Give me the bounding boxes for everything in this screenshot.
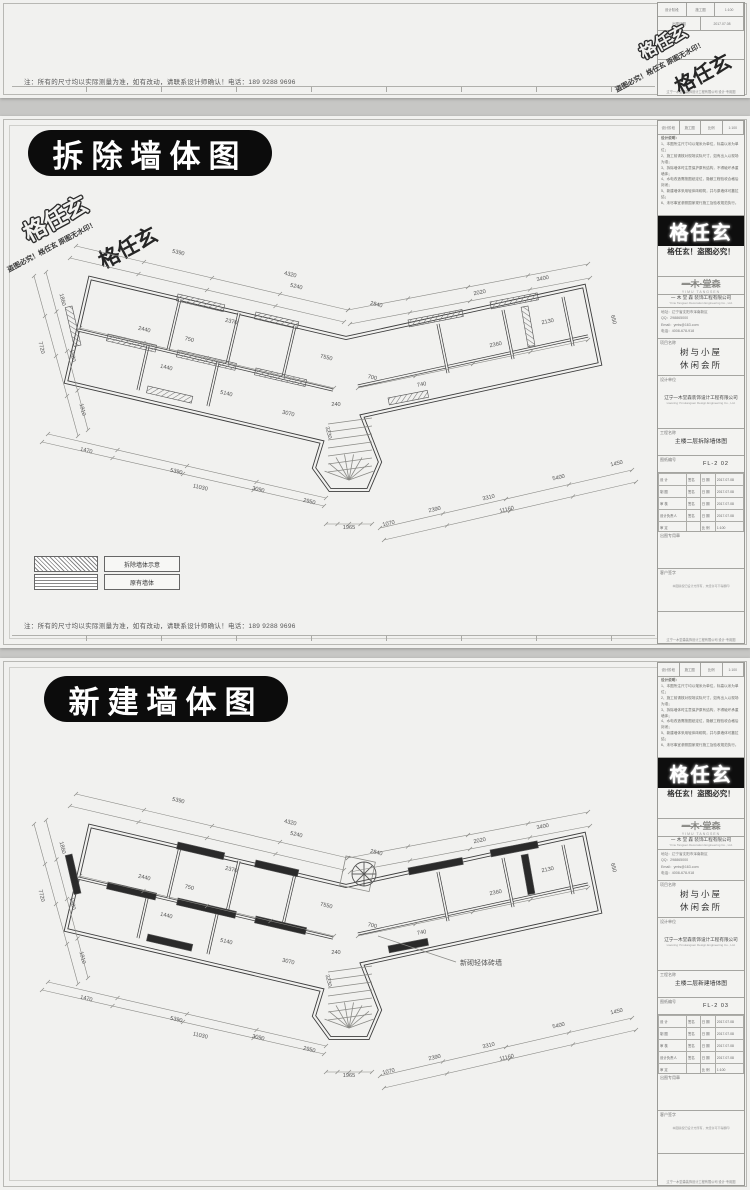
signature-cell: 制 图	[659, 1028, 687, 1040]
dimension-label: 4320	[283, 819, 296, 828]
dimension-label: 2840	[369, 849, 382, 858]
drawing-number-block: 图纸编号FL-2 03	[658, 998, 744, 1015]
dimension-label: 11160	[499, 505, 515, 514]
dimension-label: 1470	[79, 995, 92, 1004]
company-block: 一 木 堂 森 装饰工程有限公司Yimu Tangsen Decoration …	[658, 837, 744, 850]
head-cell: 比例	[701, 663, 723, 676]
sheet-title-text: 新建墙体图	[69, 677, 264, 722]
dimension-label: 2950	[302, 498, 315, 507]
dimension-label: 1450	[610, 460, 623, 469]
dimension-label: 2130	[541, 318, 554, 326]
dimension-label: 3310	[482, 494, 495, 503]
contact-block: 地址：辽宁省沈阳市浑南新区QQ：298865000Email：ymts@163.…	[658, 850, 744, 881]
head-cell: 2017.07.08	[701, 17, 744, 30]
dimension-label: 750	[184, 884, 194, 892]
design-unit-label: 设计单位	[658, 918, 744, 925]
head-cell: 设计阶段	[658, 3, 687, 16]
signature-table: 设 计签名日 期2017.07.08制 图签名日 期2017.07.08审 核签…	[658, 473, 744, 532]
dimension-label: 2390	[428, 506, 441, 515]
plan-legend: 拆除墙体示意 原有墙体	[34, 556, 180, 592]
anti-piracy-text: 格任玄！盗图必究！	[658, 246, 744, 257]
dimension-label: 7720	[37, 889, 46, 903]
legend-label: 原有墙体	[104, 574, 180, 590]
dimension-label: 7550	[319, 902, 332, 911]
dimension-label: 1070	[382, 1068, 395, 1077]
signature-cell: 2017.07.08	[715, 1040, 743, 1052]
dimension-label: 2440	[137, 874, 150, 883]
design-unit-block: 设计单位辽宁一木堂森装饰设计工程有限公司Liaoning Yimutangsen…	[658, 376, 744, 429]
dimension-label: 5400	[552, 1022, 565, 1031]
signature-cell: 2017.07.08	[715, 498, 743, 510]
signature-cell: 设计负责人	[659, 1052, 687, 1064]
sheet-top-partial: 注：所有的尺寸均以实际测量为准，如有改动，请联系设计师确认！电话：189 928…	[0, 0, 750, 98]
project-name: 树与小屋休闲会所	[658, 888, 744, 914]
signature-cell: 日 期	[700, 1016, 715, 1028]
title-block-head-row: 设计阶段施工图比例1:100	[658, 121, 744, 135]
brand-block: 格任玄格任玄！盗图必究！	[658, 758, 744, 819]
drawing-number-label: 图纸编号	[658, 998, 688, 1014]
dimension-label: 3090	[251, 1034, 264, 1043]
project-block: 项目名称树与小屋休闲会所	[658, 339, 744, 376]
signature-cell: 日 期	[700, 1052, 715, 1064]
dimension-label: 650	[609, 314, 617, 325]
signature-cell: 2017.07.08	[715, 1028, 743, 1040]
dimension-label: 3090	[251, 486, 264, 495]
dimension-label: 1470	[79, 447, 92, 456]
dimension-label: 11030	[192, 1031, 208, 1040]
signature-cell: 比 例	[700, 522, 715, 533]
copyright-text: 本图版权归设计方所有，未经许可不得翻印	[658, 1126, 744, 1130]
signature-cell: 日 期	[700, 1028, 715, 1040]
brand-watermark: 格任玄	[658, 758, 744, 788]
dimension-label: 1070	[382, 520, 395, 529]
dimension-label: 5240	[289, 283, 302, 292]
sheet-new-wall-plan: 新建墙体图 新砌轻体砖墙5390432052402840202034006507…	[0, 658, 750, 1190]
dimension-label: 740	[417, 929, 427, 937]
dimension-label: 2360	[489, 889, 502, 897]
anti-piracy-text: 格任玄！盗图必究！	[658, 788, 744, 799]
signature-table: 设 计签名日 期2017.07.08制 图签名日 期2017.07.08审 核签…	[658, 1015, 744, 1074]
signature-cell: 2017.07.08	[715, 1016, 743, 1028]
logo-text: 一木·堂森	[658, 277, 744, 290]
floor-plan-new-wall: 新砌轻体砖墙5390432052402840202034006507720186…	[28, 776, 644, 1106]
drawing-name-label: 工程名称	[658, 971, 744, 978]
legend-row: 拆除墙体示意	[34, 556, 180, 572]
signature-cell: 审 定	[659, 1064, 687, 1075]
contact-block: 地址：辽宁省沈阳市浑南新区QQ：298865000Email：ymts@163.…	[658, 308, 744, 339]
logo-block: 一木·堂森YIMU TANGSEN	[658, 819, 744, 837]
signature-table: 设 计签名日 期2017.07.08制 图签名日 期2017.07.08审 核签…	[658, 1015, 744, 1074]
drawing-name: 主楼二层拆除墙体图	[658, 436, 744, 445]
dimension-label: 3400	[536, 275, 549, 283]
dimension-label: 2130	[541, 866, 554, 874]
logo-text: 一木·堂森	[658, 819, 744, 832]
dimension-label: 7720	[37, 341, 46, 355]
signature-cell: 制 图	[659, 486, 687, 498]
dimension-label: 5390	[169, 1016, 182, 1025]
dimension-label: 3070	[281, 958, 294, 967]
sheet-title-demolition: 拆除墙体图	[28, 130, 272, 176]
dimension-label: 1440	[159, 912, 172, 921]
frame-tick-row	[12, 635, 655, 641]
design-company-en: Liaoning Yimutangsen Design Engineering …	[667, 943, 736, 947]
dimension-label: 3070	[281, 410, 294, 419]
title-block-footer: 辽宁一木堂森装饰设计工程有限公司 设计·专用图	[658, 1179, 744, 1184]
signature-cell: 1:100	[715, 522, 743, 533]
signature-cell: 设计负责人	[659, 510, 687, 522]
dimension-label: 1860	[58, 293, 67, 307]
project-name: 树与小屋休闲会所	[658, 346, 744, 372]
legend-swatch-existing-wall	[34, 574, 98, 590]
design-unit-label: 设计单位	[658, 376, 744, 383]
signature-cell: 审 核	[659, 1040, 687, 1052]
dimension-label: 5400	[552, 474, 565, 483]
design-company-en: Liaoning Yimutangsen Design Engineering …	[667, 401, 736, 405]
signature-table: 设 计签名日 期2017.07.08制 图签名日 期2017.07.08审 核签…	[658, 473, 744, 532]
dimension-label: 5240	[289, 831, 302, 840]
title-block-demolition: 设计阶段施工图比例1:100设计说明：1、本图所注尺寸均以毫米为单位，标高以米为…	[657, 120, 745, 644]
dimension-label: 740	[417, 381, 427, 389]
dimension-label: 1965	[343, 525, 355, 531]
dimension-label: 1910	[78, 951, 87, 965]
dimension-label: 2440	[137, 326, 150, 335]
signature-cell: 1:100	[715, 1064, 743, 1075]
signature-cell: 签名	[687, 510, 701, 522]
signature-cell: 签名	[687, 1052, 701, 1064]
company-block: 一 木 堂 森 装饰工程有限公司Yimu Tangsen Decoration …	[658, 295, 744, 308]
new-wall-callout: 新砌轻体砖墙	[460, 958, 502, 967]
legend-row: 原有墙体	[34, 574, 180, 590]
dimension-label: 3230	[324, 974, 333, 988]
dimension-label: 4320	[283, 271, 296, 280]
dimension-label: 5390	[171, 249, 184, 258]
title-block-new-wall: 设计阶段施工图比例1:100设计说明：1、本图所注尺寸均以毫米为单位，标高以米为…	[657, 662, 745, 1186]
brand-block: 格任玄格任玄！盗图必究！	[658, 216, 744, 277]
sheet-demolition-plan: 拆除墙体图 格任玄 盗图必究！格任玄 原图无水印！ 格任玄 5390432052…	[0, 116, 750, 648]
signature-cell: 2017.07.08	[715, 486, 743, 498]
drawing-name-block: 工程名称主楼二层新建墙体图	[658, 971, 744, 998]
signature-cell	[687, 522, 701, 533]
stamp-block: 出图专用章	[658, 532, 744, 569]
head-cell: 比例	[701, 121, 723, 134]
frame-tick-row	[12, 86, 655, 92]
signature-cell: 签名	[687, 474, 701, 486]
dimension-label: 240	[331, 402, 340, 408]
sheet-note: 注：所有的尺寸均以实际测量为准，如有改动，请联系设计师确认！电话：189 928…	[24, 620, 296, 630]
dimension-label: 2020	[473, 837, 486, 845]
dimension-label: 2020	[473, 289, 486, 297]
dimension-label: 2370	[224, 318, 237, 327]
dimension-label: 2370	[224, 866, 237, 875]
design-notes: 设计说明：1、本图所注尺寸均以毫米为单位，标高以米为单位；2、施工前请核对现场实…	[658, 135, 744, 216]
head-cell: 设计阶段	[658, 663, 680, 676]
design-notes: 设计说明：1、本图所注尺寸均以毫米为单位，标高以米为单位；2、施工前请核对现场实…	[658, 677, 744, 758]
drawing-name-label: 工程名称	[658, 429, 744, 436]
dimension-label: 5140	[219, 938, 232, 947]
signature-cell: 签名	[687, 498, 701, 510]
head-cell: 1:100	[723, 121, 745, 134]
floor-plan-demolition: 5390432052402840202034006507720186019801…	[28, 228, 644, 558]
dimension-label: 1965	[343, 1073, 355, 1079]
title-block-footer: 辽宁一木堂森装饰设计工程有限公司 设计·专用图	[658, 89, 744, 94]
logo-subtext: YIMU TANGSEN	[658, 832, 744, 836]
dimension-label: 2360	[489, 341, 502, 349]
legend-swatch-demolished-wall	[34, 556, 98, 572]
dimension-label: 700	[367, 922, 377, 930]
dimension-label: 1860	[58, 841, 67, 855]
misc-label: 出图专用章	[658, 31, 744, 38]
signature-cell: 2017.07.08	[715, 474, 743, 486]
signature-cell: 审 核	[659, 498, 687, 510]
signature-cell: 日 期	[700, 498, 715, 510]
head-cell: 1:100	[723, 663, 745, 676]
dimension-label: 1450	[610, 1008, 623, 1017]
signature-cell: 日 期	[700, 1040, 715, 1052]
title-block-footer: 辽宁一木堂森装饰设计工程有限公司 设计·专用图	[658, 637, 744, 642]
drawing-number-label: 图纸编号	[658, 456, 688, 472]
dimension-label: 5390	[169, 468, 182, 477]
project-label: 项目名称	[658, 339, 744, 346]
title-block-head-row: 设计阶段施工图比例1:100	[658, 663, 744, 677]
sheet-title-new-wall: 新建墙体图	[44, 676, 288, 722]
logo-subtext: YIMU TANGSEN	[658, 290, 744, 294]
signature-cell: 2017.07.08	[715, 510, 743, 522]
dimension-label: 2840	[369, 301, 382, 310]
misc-label: 客户签字	[658, 569, 744, 576]
stamp-block: 出图专用章	[658, 1074, 744, 1111]
dimension-label: 700	[367, 374, 377, 382]
signature-cell: 日 期	[700, 510, 715, 522]
legend-label: 拆除墙体示意	[104, 556, 180, 572]
dimension-label: 7550	[319, 354, 332, 363]
signature-cell: 签名	[687, 486, 701, 498]
signature-cell: 比 例	[700, 1064, 715, 1075]
signature-cell	[687, 1064, 701, 1075]
dimension-label: 1440	[159, 364, 172, 373]
company-name-en: Yimu Tangsen Decoration Engineering Co.,…	[658, 301, 744, 305]
dimension-label: 11030	[192, 483, 208, 492]
title-block-head-row: 出图日期 2017.07.08	[658, 17, 744, 31]
title-block-top: 设计阶段 施工图 1:100 出图日期 2017.07.08 出图专用章 辽宁一…	[657, 2, 745, 96]
sheet-title-text: 拆除墙体图	[53, 131, 248, 176]
drawing-set-page: { "page": {"bg": "#c7c7c5", "paper": "#f…	[0, 0, 750, 1000]
drawing-number-block: 图纸编号FL-2 02	[658, 456, 744, 473]
dimension-label: 5390	[171, 797, 184, 806]
design-unit-block: 设计单位辽宁一木堂森装饰设计工程有限公司Liaoning Yimutangsen…	[658, 918, 744, 971]
signature-cell: 设 计	[659, 1016, 687, 1028]
signature-cell: 2017.07.08	[715, 1052, 743, 1064]
signature-cell: 签名	[687, 1028, 701, 1040]
drawing-number: FL-2 03	[688, 998, 744, 1014]
head-cell: 施工图	[680, 663, 702, 676]
misc-label: 出图专用章	[658, 1074, 744, 1081]
head-cell: 设计阶段	[658, 121, 680, 134]
signature-cell: 签名	[687, 1040, 701, 1052]
dimension-label: 2390	[428, 1054, 441, 1063]
signature-cell: 签名	[687, 1016, 701, 1028]
signature-cell: 审 定	[659, 522, 687, 533]
drawing-name: 主楼二层新建墙体图	[658, 978, 744, 987]
copyright-text: 本图版权归设计方所有，未经许可不得翻印	[658, 584, 744, 588]
project-block: 项目名称树与小屋休闲会所	[658, 881, 744, 918]
title-block-head-row: 设计阶段 施工图 1:100	[658, 3, 744, 17]
signature-cell: 日 期	[700, 474, 715, 486]
dimension-label: 750	[184, 336, 194, 344]
drawing-name-block: 工程名称主楼二层拆除墙体图	[658, 429, 744, 456]
dimension-label: 650	[609, 862, 617, 873]
client-sign-block: 客户签字本图版权归设计方所有，未经许可不得翻印	[658, 569, 744, 612]
dimension-label: 2950	[302, 1046, 315, 1055]
company-name-en: Yimu Tangsen Decoration Engineering Co.,…	[658, 843, 744, 847]
signature-cell: 设 计	[659, 474, 687, 486]
dimension-label: 3400	[536, 823, 549, 831]
head-cell: 出图日期	[658, 17, 701, 30]
dimension-label: 240	[331, 950, 340, 956]
dimension-label: 3310	[482, 1042, 495, 1051]
head-cell: 施工图	[687, 3, 716, 16]
dimension-label: 5140	[219, 390, 232, 399]
head-cell: 1:100	[715, 3, 744, 16]
dimension-label: 11160	[499, 1053, 515, 1062]
signature-cell: 日 期	[700, 486, 715, 498]
misc-label: 客户签字	[658, 1111, 744, 1118]
misc-label: 出图专用章	[658, 532, 744, 539]
drawing-number: FL-2 02	[688, 456, 744, 472]
brand-watermark: 格任玄	[658, 216, 744, 246]
head-cell: 施工图	[680, 121, 702, 134]
sheet-note: 注：所有的尺寸均以实际测量为准，如有改动，请联系设计师确认！电话：189 928…	[24, 76, 296, 86]
logo-block: 一木·堂森YIMU TANGSEN	[658, 277, 744, 295]
dimension-label: 1910	[78, 403, 87, 417]
dimension-label: 3230	[324, 426, 333, 440]
client-sign-block: 客户签字本图版权归设计方所有，未经许可不得翻印	[658, 1111, 744, 1154]
project-label: 项目名称	[658, 881, 744, 888]
